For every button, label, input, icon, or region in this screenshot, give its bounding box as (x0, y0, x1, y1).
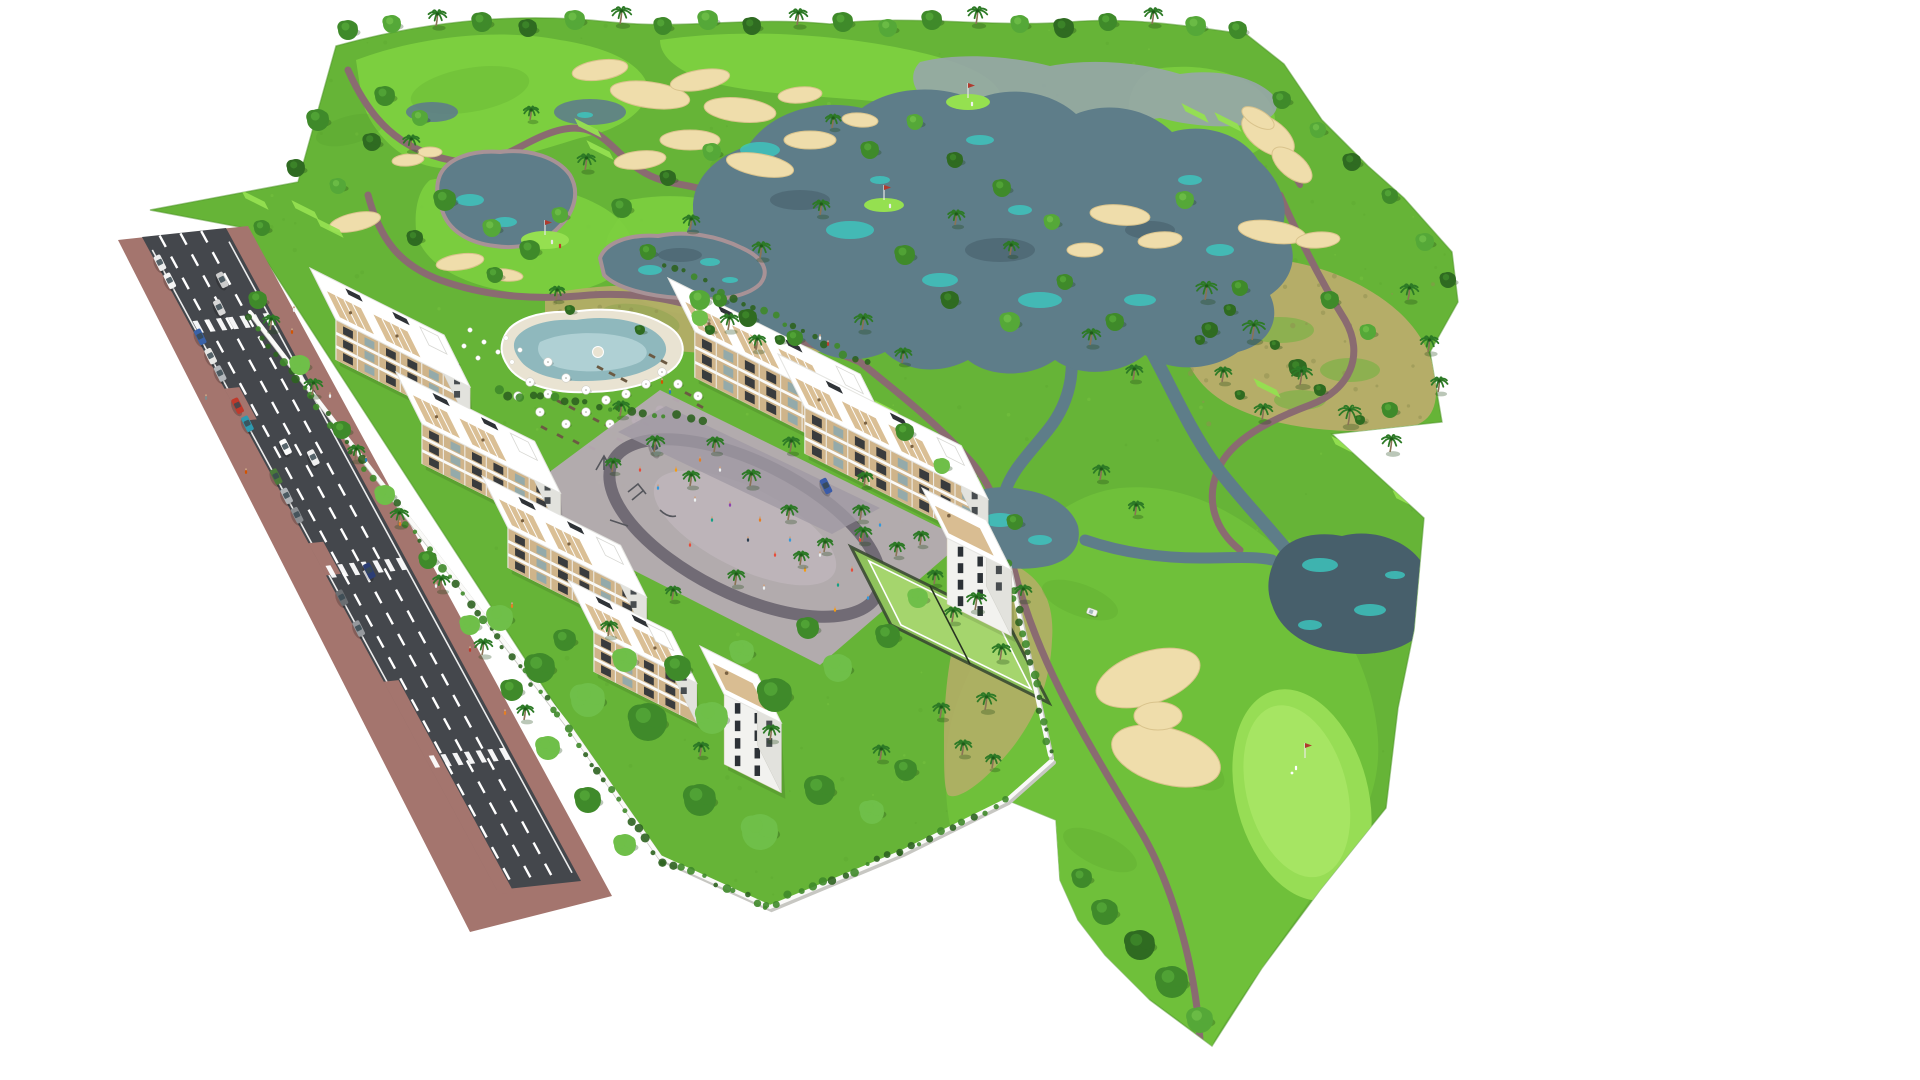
tree-crown (933, 459, 943, 469)
dry-tuft (779, 297, 781, 299)
tree-shadow (386, 23, 403, 30)
tree (253, 220, 272, 236)
tree-crown (684, 784, 716, 816)
palm-frond (894, 543, 898, 546)
tree-shadow (899, 768, 920, 777)
tree-highlight (657, 19, 664, 26)
palm-frond (1001, 644, 1004, 648)
palm-frond (356, 448, 364, 452)
palm-frond (782, 508, 790, 512)
palm-frond (819, 204, 822, 210)
grass-speckle (846, 1019, 848, 1021)
palm-frond (1302, 367, 1305, 371)
grass-speckle (282, 218, 285, 221)
tree-shadow (529, 665, 558, 677)
tree-highlight (555, 209, 561, 215)
pedestrian-body (661, 380, 663, 384)
grass-speckle (800, 747, 803, 750)
tree-highlight (777, 336, 781, 340)
shrub (518, 664, 522, 668)
crosswalk-stripe (396, 558, 407, 570)
shrub (729, 295, 737, 303)
window (766, 371, 776, 385)
palm-frond (352, 445, 356, 449)
grass-speckle (256, 706, 258, 708)
palm-frond (1429, 339, 1438, 343)
window (536, 497, 546, 510)
palm-frond (1439, 379, 1447, 381)
shrub (639, 409, 647, 417)
palm-frond (606, 461, 613, 465)
pool-island (593, 347, 604, 358)
window (665, 671, 675, 684)
teal-shallow (493, 217, 517, 227)
palm-trunk (312, 383, 313, 395)
palm-frond (818, 541, 825, 545)
pedestrian-body (669, 390, 671, 394)
window (515, 548, 525, 561)
palm-shadow (308, 394, 321, 399)
shrub (379, 487, 383, 491)
water-shadows (658, 190, 1175, 262)
tree-crown (629, 703, 667, 741)
person-body (804, 623, 806, 627)
shrub (819, 877, 827, 885)
shrub (678, 863, 685, 870)
shrub (908, 842, 915, 849)
rough-shadow (313, 107, 388, 152)
rough-mottle (1246, 317, 1314, 343)
tree-crown (895, 759, 917, 781)
grass-speckle (1209, 724, 1211, 726)
grass-speckle (184, 670, 186, 672)
person-body (711, 518, 713, 522)
dry-tuft (577, 330, 580, 333)
palm-frond (751, 474, 755, 480)
grass-speckle (495, 547, 498, 550)
tree-crown (307, 109, 329, 131)
facade-southwest (947, 538, 1011, 636)
roof (396, 372, 560, 493)
sun-lounger (580, 411, 588, 417)
grass-speckle (875, 149, 877, 151)
pedestrian-head (291, 328, 293, 330)
palm-crown (728, 316, 731, 319)
grass-speckle (1092, 786, 1095, 789)
shrub (994, 804, 999, 809)
tree-crown (690, 290, 710, 310)
dry-tuft (721, 313, 724, 316)
tower-window (735, 703, 741, 714)
palm-trunk (985, 697, 987, 710)
shrub (754, 900, 761, 907)
person-body (759, 518, 761, 522)
palm-trunk (820, 204, 821, 215)
sun-lounger (696, 403, 704, 409)
parking-island (384, 680, 514, 894)
palm-frond (646, 438, 655, 440)
tree-shadow (486, 227, 503, 234)
palm-frond (349, 448, 357, 452)
window (962, 520, 972, 534)
tree-shadow (716, 300, 729, 306)
palm-frond (715, 441, 719, 447)
palm-crown (654, 438, 657, 441)
palm-frond (1392, 435, 1395, 439)
palm-frond (1291, 369, 1301, 371)
end-window (545, 471, 551, 478)
golfer (1295, 766, 1297, 770)
car (646, 439, 663, 460)
tree-crown (406, 231, 416, 241)
palm-frond (895, 546, 897, 552)
car (201, 347, 218, 368)
palm-frond (859, 314, 863, 318)
palm-frond (945, 609, 953, 611)
umbrella-pole (565, 423, 567, 425)
tree-highlight (422, 553, 429, 560)
window (809, 423, 819, 437)
grass-speckle (596, 214, 598, 216)
car-shadow (238, 416, 254, 436)
dry-tuft (1197, 261, 1203, 267)
window (665, 684, 675, 697)
tree-crown (1014, 516, 1023, 525)
tree-highlight (1419, 235, 1426, 242)
palm-crown (436, 12, 439, 15)
tree-crown (1381, 189, 1391, 199)
palm-trunk (1390, 439, 1392, 452)
palm-frond (787, 437, 791, 441)
palm-tree (1129, 501, 1144, 519)
tree-shadow (1160, 978, 1190, 991)
grass-speckle (1041, 968, 1043, 970)
grass-speckle (1298, 709, 1303, 714)
palm-frond (825, 542, 829, 547)
umbrella-pole (605, 399, 607, 401)
dry-tuft (762, 340, 764, 342)
tree-highlight (617, 651, 627, 661)
slide (660, 510, 676, 516)
pool-area (462, 310, 704, 451)
shrub (608, 407, 612, 411)
window (407, 372, 417, 385)
palm-trunk (1205, 286, 1207, 300)
streams (1005, 318, 1285, 560)
shrub (601, 777, 606, 782)
palm-frond (395, 509, 399, 513)
pergola-beam (914, 437, 927, 464)
shrub (545, 695, 551, 701)
grass-texture (119, 13, 1450, 1045)
tree-crown (692, 310, 708, 326)
palm-shadow (1200, 299, 1215, 305)
grass-speckle (630, 339, 633, 342)
palm-shadow (670, 600, 681, 604)
grass-speckle (391, 835, 395, 839)
person-body (859, 538, 861, 542)
palm-frond (356, 449, 360, 455)
grass-speckle (959, 1012, 962, 1015)
grass-speckle (1390, 549, 1393, 552)
tree-crown (613, 648, 637, 672)
grass-speckle (827, 703, 829, 705)
tree-crown (1359, 325, 1369, 335)
cafe-table (510, 360, 515, 365)
palm-tree (914, 531, 929, 549)
tree-shadow (864, 810, 887, 820)
dry-tuft (630, 348, 632, 350)
grass-speckle (725, 775, 729, 779)
tree-crown (860, 800, 884, 824)
palm-shadow (650, 451, 663, 456)
end-window (681, 687, 687, 694)
palm-frond (554, 287, 558, 290)
palm-frond (1389, 439, 1392, 446)
tee-box (316, 218, 343, 238)
grass-speckle (371, 341, 374, 344)
tree-crown (695, 703, 715, 723)
grass-speckle (946, 869, 949, 872)
grass-speckle (1264, 1017, 1268, 1021)
crosswalk-stripe (325, 565, 336, 577)
grass-speckle (855, 330, 857, 332)
tree (695, 702, 730, 734)
tree-shadow (669, 665, 694, 675)
sand-bunker (1089, 637, 1208, 720)
grass-speckle (143, 283, 146, 286)
crosswalk-stripe (440, 754, 451, 766)
palm-shadow (1435, 392, 1447, 397)
grass-speckle (1273, 865, 1276, 868)
shrub (866, 862, 870, 866)
palm-frond (578, 158, 586, 163)
tree-highlight (530, 657, 542, 669)
shrub (1019, 630, 1026, 637)
window (962, 505, 972, 519)
end-window (972, 492, 978, 500)
palm-shadow (746, 485, 759, 490)
grass-speckle (450, 598, 452, 600)
tree (518, 19, 539, 37)
palm-frond (1439, 377, 1442, 381)
tree (894, 245, 917, 265)
palm-trunk (862, 318, 863, 330)
shrub (896, 849, 903, 856)
palm-crown (756, 337, 759, 340)
palm-frond (771, 727, 779, 729)
shrub (622, 808, 627, 813)
grass-speckle (895, 473, 897, 475)
window (766, 386, 776, 400)
grass-speckle (310, 486, 313, 489)
tree-shadow (1292, 367, 1309, 374)
palm-tree (1215, 367, 1231, 386)
tree-crown (500, 680, 514, 694)
palm-frond (647, 440, 655, 445)
person (689, 541, 691, 546)
umbrella (632, 416, 642, 425)
grass-speckle (1031, 1007, 1033, 1009)
pedestrian-head (827, 340, 829, 342)
tree-crown (1439, 273, 1449, 283)
dry-tuft (637, 296, 641, 300)
crosswalk-stripe (487, 749, 498, 761)
grass-speckle (390, 712, 394, 716)
sand-bunkers (328, 56, 1341, 798)
car-body (163, 272, 177, 290)
dry-rough (1179, 257, 1437, 431)
tree-shadow (464, 624, 483, 632)
person (759, 516, 761, 521)
mini-green (521, 231, 569, 249)
floor-slab (695, 345, 887, 444)
tower-window (735, 756, 741, 767)
palm-crown (760, 244, 763, 247)
grass-speckle (997, 843, 999, 845)
tree-crown (1319, 385, 1326, 392)
palm-frond (729, 573, 737, 577)
tree-crown (565, 10, 585, 30)
car (228, 397, 245, 418)
grass-speckle (1007, 413, 1011, 417)
pedestrian-head (245, 468, 247, 470)
grass-speckle (120, 615, 123, 618)
putting-greens (521, 94, 990, 249)
tree-crown (1288, 360, 1299, 371)
palm-frond (1350, 410, 1355, 418)
palm-trunk (1090, 333, 1091, 345)
umbrella-canopy (658, 368, 667, 377)
window (745, 360, 755, 374)
grass-speckle (833, 360, 836, 363)
tree-crown (699, 292, 710, 303)
window (429, 430, 439, 443)
palm-trunk (700, 746, 701, 756)
palm-trunk (1000, 648, 1001, 660)
sand-bunker (392, 153, 425, 168)
roof-terrace (888, 424, 935, 468)
palm-tree (986, 754, 1001, 772)
grass-speckle (985, 195, 989, 199)
tree-crown (1064, 276, 1073, 285)
grass-speckle (1439, 278, 1442, 281)
tower-window (735, 738, 741, 749)
palm-frond (525, 708, 533, 712)
palm-frond (614, 404, 622, 408)
tree-shadow (1324, 299, 1341, 306)
deep-water (1125, 221, 1175, 239)
tree (1053, 18, 1076, 38)
palm-frond (963, 740, 966, 744)
window (429, 369, 439, 382)
shrub (427, 546, 433, 552)
tree-highlight (1272, 341, 1276, 345)
palm-frond (822, 539, 826, 542)
pergola-beam (610, 616, 623, 642)
window (833, 425, 843, 439)
tree-crown (564, 631, 576, 643)
palm-frond (863, 317, 872, 321)
teal-shallow (1354, 604, 1386, 616)
sun-lounger (620, 377, 628, 383)
grass-speckle (539, 528, 543, 532)
palm-frond (715, 440, 723, 444)
palm-frond (798, 13, 802, 19)
window (898, 473, 908, 487)
terrace-furniture (910, 445, 913, 448)
person (699, 456, 701, 461)
palm-frond (817, 200, 821, 204)
umbrella-shadow (563, 378, 572, 382)
person-head (639, 466, 641, 468)
palm-frond (671, 590, 673, 596)
car-body (153, 254, 167, 272)
terrace-furniture (435, 415, 438, 418)
palm-frond (833, 117, 840, 121)
dry-tuft (691, 324, 696, 329)
grass-speckle (1437, 660, 1440, 663)
tree (1010, 15, 1031, 33)
grass-speckle (789, 790, 791, 792)
grass-speckle (1325, 585, 1328, 588)
palm-crown (880, 747, 883, 750)
shrub (259, 336, 264, 341)
palm-frond (877, 745, 881, 749)
tree-crown (739, 309, 757, 327)
pedestrian-head (661, 378, 663, 380)
tree-shadow (899, 431, 916, 438)
palm-crown (952, 609, 955, 612)
palm-crown (1438, 379, 1441, 382)
grass-speckle (1411, 510, 1413, 512)
palm-tree (873, 745, 889, 764)
palm-tree (968, 7, 987, 29)
grass-speckle (761, 390, 764, 393)
pergola-beam (399, 327, 412, 353)
tree-shadow (1109, 321, 1126, 328)
palm-trunk (832, 118, 833, 128)
pergola-beam (795, 357, 808, 384)
grass-speckle (1242, 398, 1246, 402)
pedestrian-body (399, 522, 401, 526)
palm-shadow (877, 760, 889, 765)
palm-frond (1129, 504, 1136, 508)
seesaw (610, 520, 628, 526)
umbrella (694, 392, 704, 401)
end-window (972, 476, 978, 484)
umbrella (656, 406, 666, 415)
tree-crown (1389, 190, 1398, 199)
grass-speckle (1447, 741, 1451, 745)
tree-crown (1155, 967, 1175, 987)
roof (700, 646, 781, 723)
grass-speckle (1132, 62, 1135, 65)
grass-speckle (609, 674, 611, 676)
tree-crown (1176, 191, 1194, 209)
umbrella (544, 358, 554, 367)
grass-speckle (675, 361, 677, 363)
grass-speckle (612, 849, 614, 851)
tree-shadow (944, 299, 961, 306)
palm-frond (789, 508, 797, 512)
palm-frond (613, 461, 620, 465)
window (493, 476, 503, 489)
palm-frond (525, 707, 533, 709)
tree-crown (941, 460, 950, 469)
tree (653, 17, 674, 35)
shrub (396, 508, 403, 515)
